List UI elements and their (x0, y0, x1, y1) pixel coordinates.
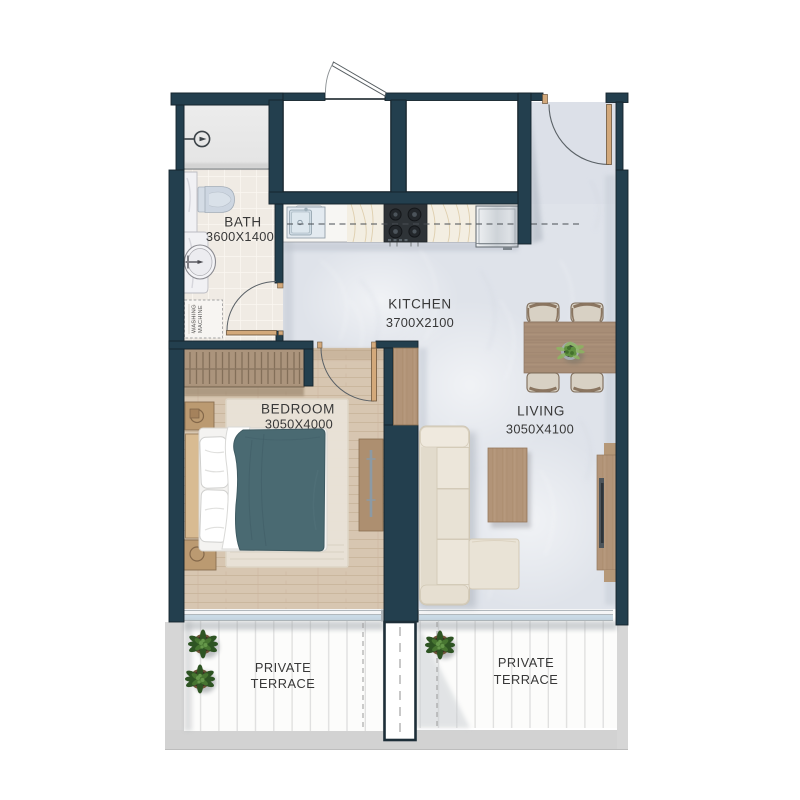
svg-text:MACHINE: MACHINE (198, 305, 204, 333)
svg-text:3600X1400: 3600X1400 (206, 229, 274, 244)
svg-text:BATH: BATH (224, 215, 261, 230)
svg-text:3050X4000: 3050X4000 (265, 417, 333, 432)
svg-text:PRIVATE: PRIVATE (498, 655, 554, 670)
svg-text:WASHING: WASHING (192, 304, 198, 333)
svg-text:BEDROOM: BEDROOM (261, 402, 335, 417)
svg-text:TERRACE: TERRACE (494, 672, 559, 687)
svg-text:PRIVATE: PRIVATE (255, 660, 311, 675)
svg-text:LIVING: LIVING (517, 404, 565, 419)
svg-text:TERRACE: TERRACE (251, 676, 316, 691)
svg-text:3700X2100: 3700X2100 (386, 315, 454, 330)
svg-text:KITCHEN: KITCHEN (388, 297, 451, 312)
svg-text:3050X4100: 3050X4100 (506, 422, 574, 437)
